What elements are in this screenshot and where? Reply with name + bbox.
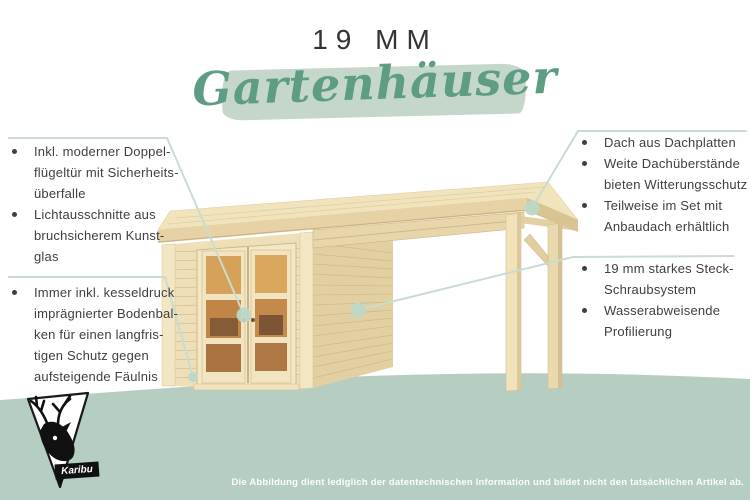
interior-shape xyxy=(259,315,283,335)
bullet-icon xyxy=(582,203,587,208)
infographic-page: { "header": { "kicker": "19 MM", "title"… xyxy=(0,0,750,500)
callout-text: Dach aus Dachplatten xyxy=(604,135,736,150)
callout-list-right-top: Dach aus Dachplatten Weite Dachüberständ… xyxy=(579,132,750,237)
canopy-post-rear-shade xyxy=(558,223,562,388)
deer-eye xyxy=(53,436,57,440)
bullet-icon xyxy=(582,161,587,166)
callout-list-right-bottom: 19 mm starkes Steck- Schraubsystem Wasse… xyxy=(579,258,750,342)
callout-text: Lichtausschnitte aus bruchsicherem Kunst… xyxy=(34,207,164,264)
callout-item: Wasserabweisende Profilierung xyxy=(579,300,750,342)
callout-list-left-top: Inkl. moderner Doppel- flügeltür mit Sic… xyxy=(9,141,187,267)
bullet-icon xyxy=(582,140,587,145)
door-threshold xyxy=(194,384,299,390)
callout-dot-door xyxy=(237,308,252,323)
bullet-icon xyxy=(582,308,587,313)
logo-wordmark: Karibu xyxy=(55,461,100,479)
bullet-icon xyxy=(12,212,17,217)
callout-dot-wall xyxy=(351,303,366,318)
interior-shape xyxy=(210,318,238,336)
house-group xyxy=(158,182,578,391)
disclaimer-text: Die Abbildung dient lediglich der datent… xyxy=(231,477,744,488)
door-pane xyxy=(206,344,241,372)
canopy-post-front-shade xyxy=(517,213,521,390)
callout-item: Teilweise im Set mit Anbaudach erhältlic… xyxy=(579,195,750,237)
callout-text: Wasserabweisende Profilierung xyxy=(604,303,720,339)
callout-text: Immer inkl. kesseldruck imprägnierter Bo… xyxy=(34,285,178,384)
door-handle xyxy=(251,318,255,322)
callout-list-left-bottom: Immer inkl. kesseldruck imprägnierter Bo… xyxy=(9,282,197,387)
callout-item: Lichtausschnitte aus bruchsicherem Kunst… xyxy=(9,204,187,267)
callout-dot-roof xyxy=(525,201,540,216)
callout-item: Dach aus Dachplatten xyxy=(579,132,750,153)
door-pane xyxy=(255,255,287,293)
bullet-icon xyxy=(582,266,587,271)
bullet-icon xyxy=(12,290,17,295)
callout-text: Inkl. moderner Doppel- flügeltür mit Sic… xyxy=(34,144,179,201)
door-pane xyxy=(255,343,287,371)
callout-text: Teilweise im Set mit Anbaudach erhältlic… xyxy=(604,198,729,234)
callout-text: Weite Dachüberstände bieten Witterungssc… xyxy=(604,156,747,192)
door-pane xyxy=(206,256,241,294)
callout-item: Inkl. moderner Doppel- flügeltür mit Sic… xyxy=(9,141,187,204)
corner-trim-right xyxy=(300,232,313,389)
canopy-brace xyxy=(524,234,548,266)
callout-text: 19 mm starkes Steck- Schraubsystem xyxy=(604,261,734,297)
callout-item: Weite Dachüberstände bieten Witterungssc… xyxy=(579,153,750,195)
callout-item: Immer inkl. kesseldruck imprägnierter Bo… xyxy=(9,282,197,387)
bullet-icon xyxy=(12,149,17,154)
callout-item: 19 mm starkes Steck- Schraubsystem xyxy=(579,258,750,300)
